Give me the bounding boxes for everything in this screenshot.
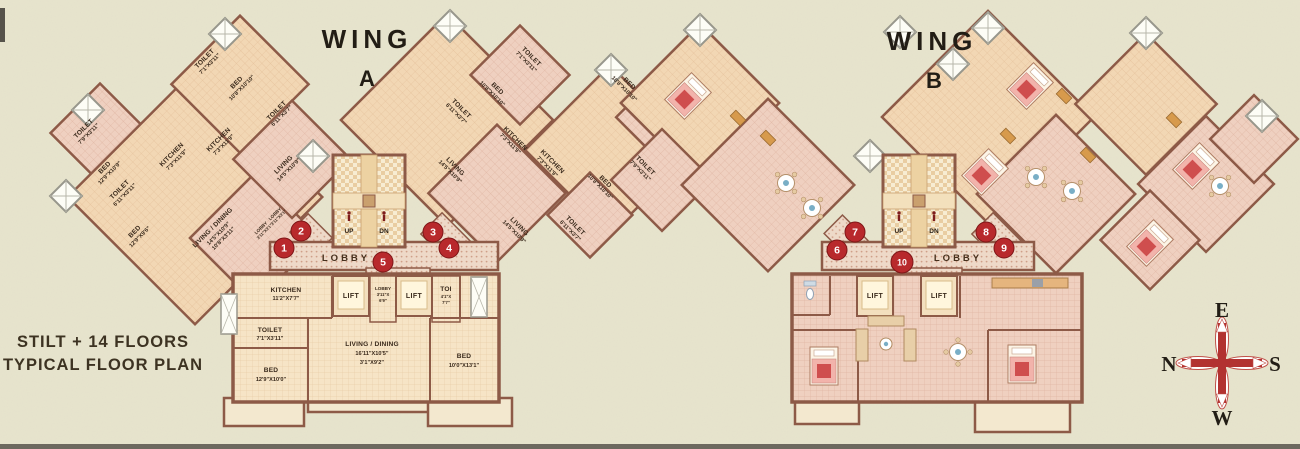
- room-name: KITCHEN: [271, 287, 302, 294]
- room-name: TOI: [440, 286, 451, 293]
- room-name: BED: [264, 367, 279, 374]
- floor-plan-svg: UP DN LOBBY UP DN LOBBY KITCHEN 11'2"X7'…: [0, 0, 1300, 449]
- lift-label: LIFT: [867, 293, 884, 300]
- room-name: TOILET: [258, 327, 283, 334]
- room-dim: 7'7": [442, 300, 450, 305]
- duct-shaft: [471, 277, 487, 317]
- room-dim: 16'11"X10'5": [355, 351, 389, 357]
- stairs-dn-label: DN: [379, 228, 389, 235]
- room-dim: 6'9": [379, 298, 387, 303]
- room-dim: 7'1"X3'11": [257, 336, 284, 342]
- marker-3: 3: [423, 222, 443, 242]
- marker-number: 4: [446, 243, 452, 255]
- room-dim: 11'2"X7'7": [273, 296, 300, 302]
- person-down-icon: [932, 211, 935, 221]
- wing-a-name: WING: [322, 24, 413, 54]
- marker-5: 5: [373, 252, 393, 272]
- marker-number: 9: [1001, 243, 1007, 255]
- marker-9: 9: [994, 238, 1014, 258]
- bed-furniture: [1008, 345, 1036, 383]
- edge-artifact: [0, 444, 1300, 449]
- marker-number: 8: [983, 227, 989, 239]
- marker-7: 7: [845, 222, 865, 242]
- person-up-icon: [347, 211, 350, 221]
- room-name: LIVING / DINING: [345, 341, 399, 348]
- wing-a-letter: A: [359, 66, 375, 91]
- compass-east-label: E: [1215, 298, 1229, 322]
- lift-label: LIFT: [406, 293, 423, 300]
- lobby-label: LOBBY: [934, 253, 982, 264]
- wing-b-letter: B: [926, 68, 942, 93]
- room-name: LOBBY: [375, 286, 391, 291]
- kitchen-counter: [992, 278, 1068, 288]
- lift-label: LIFT: [931, 293, 948, 300]
- marker-6: 6: [827, 240, 847, 260]
- room-dim: 3'11"X: [377, 292, 390, 297]
- marker-number: 5: [380, 257, 386, 269]
- marker-8: 8: [976, 222, 996, 242]
- stairs-up-label: UP: [894, 228, 904, 235]
- plan-title-line1: STILT + 14 FLOORS: [17, 333, 189, 351]
- stairs-up-label: UP: [344, 228, 354, 235]
- marker-number: 1: [281, 243, 287, 255]
- room-dim: 3'1"X9'2": [360, 360, 384, 366]
- plan-title-line2: TYPICAL FLOOR PLAN: [3, 356, 203, 374]
- compass-south-label: S: [1269, 352, 1281, 376]
- room-dim: 10'0"X13'1": [449, 363, 480, 369]
- bed-furniture: [810, 347, 838, 385]
- room-dim: 12'9"X10'0": [256, 377, 287, 383]
- person-down-icon: [382, 211, 385, 221]
- lift-label: LIFT: [343, 293, 360, 300]
- person-up-icon: [897, 211, 900, 221]
- flat-a: KITCHEN 11'2"X7'7" LIFT LOBBY 3'11"X 6'9…: [221, 274, 512, 426]
- marker-number: 10: [897, 257, 907, 267]
- duct-shaft: [221, 294, 237, 334]
- edge-artifact: [0, 8, 5, 42]
- marker-2: 2: [291, 221, 311, 241]
- marker-10: 10: [891, 251, 913, 273]
- marker-number: 2: [298, 226, 304, 238]
- floor-plan-image: UP DN LOBBY UP DN LOBBY KITCHEN 11'2"X7'…: [0, 0, 1300, 449]
- lobby-label: LOBBY: [322, 253, 370, 264]
- marker-4: 4: [439, 238, 459, 258]
- marker-number: 7: [852, 227, 858, 239]
- marker-number: 6: [834, 245, 840, 257]
- marker-number: 3: [430, 227, 436, 239]
- compass-north-label: N: [1161, 352, 1176, 376]
- stairs-dn-label: DN: [929, 228, 939, 235]
- wing-b-name: WING: [887, 26, 978, 56]
- balcony: [975, 402, 1070, 432]
- room-dim: 4'1"X: [441, 294, 452, 299]
- marker-1: 1: [274, 238, 294, 258]
- room-name: BED: [457, 353, 472, 360]
- compass-west-label: W: [1212, 406, 1233, 430]
